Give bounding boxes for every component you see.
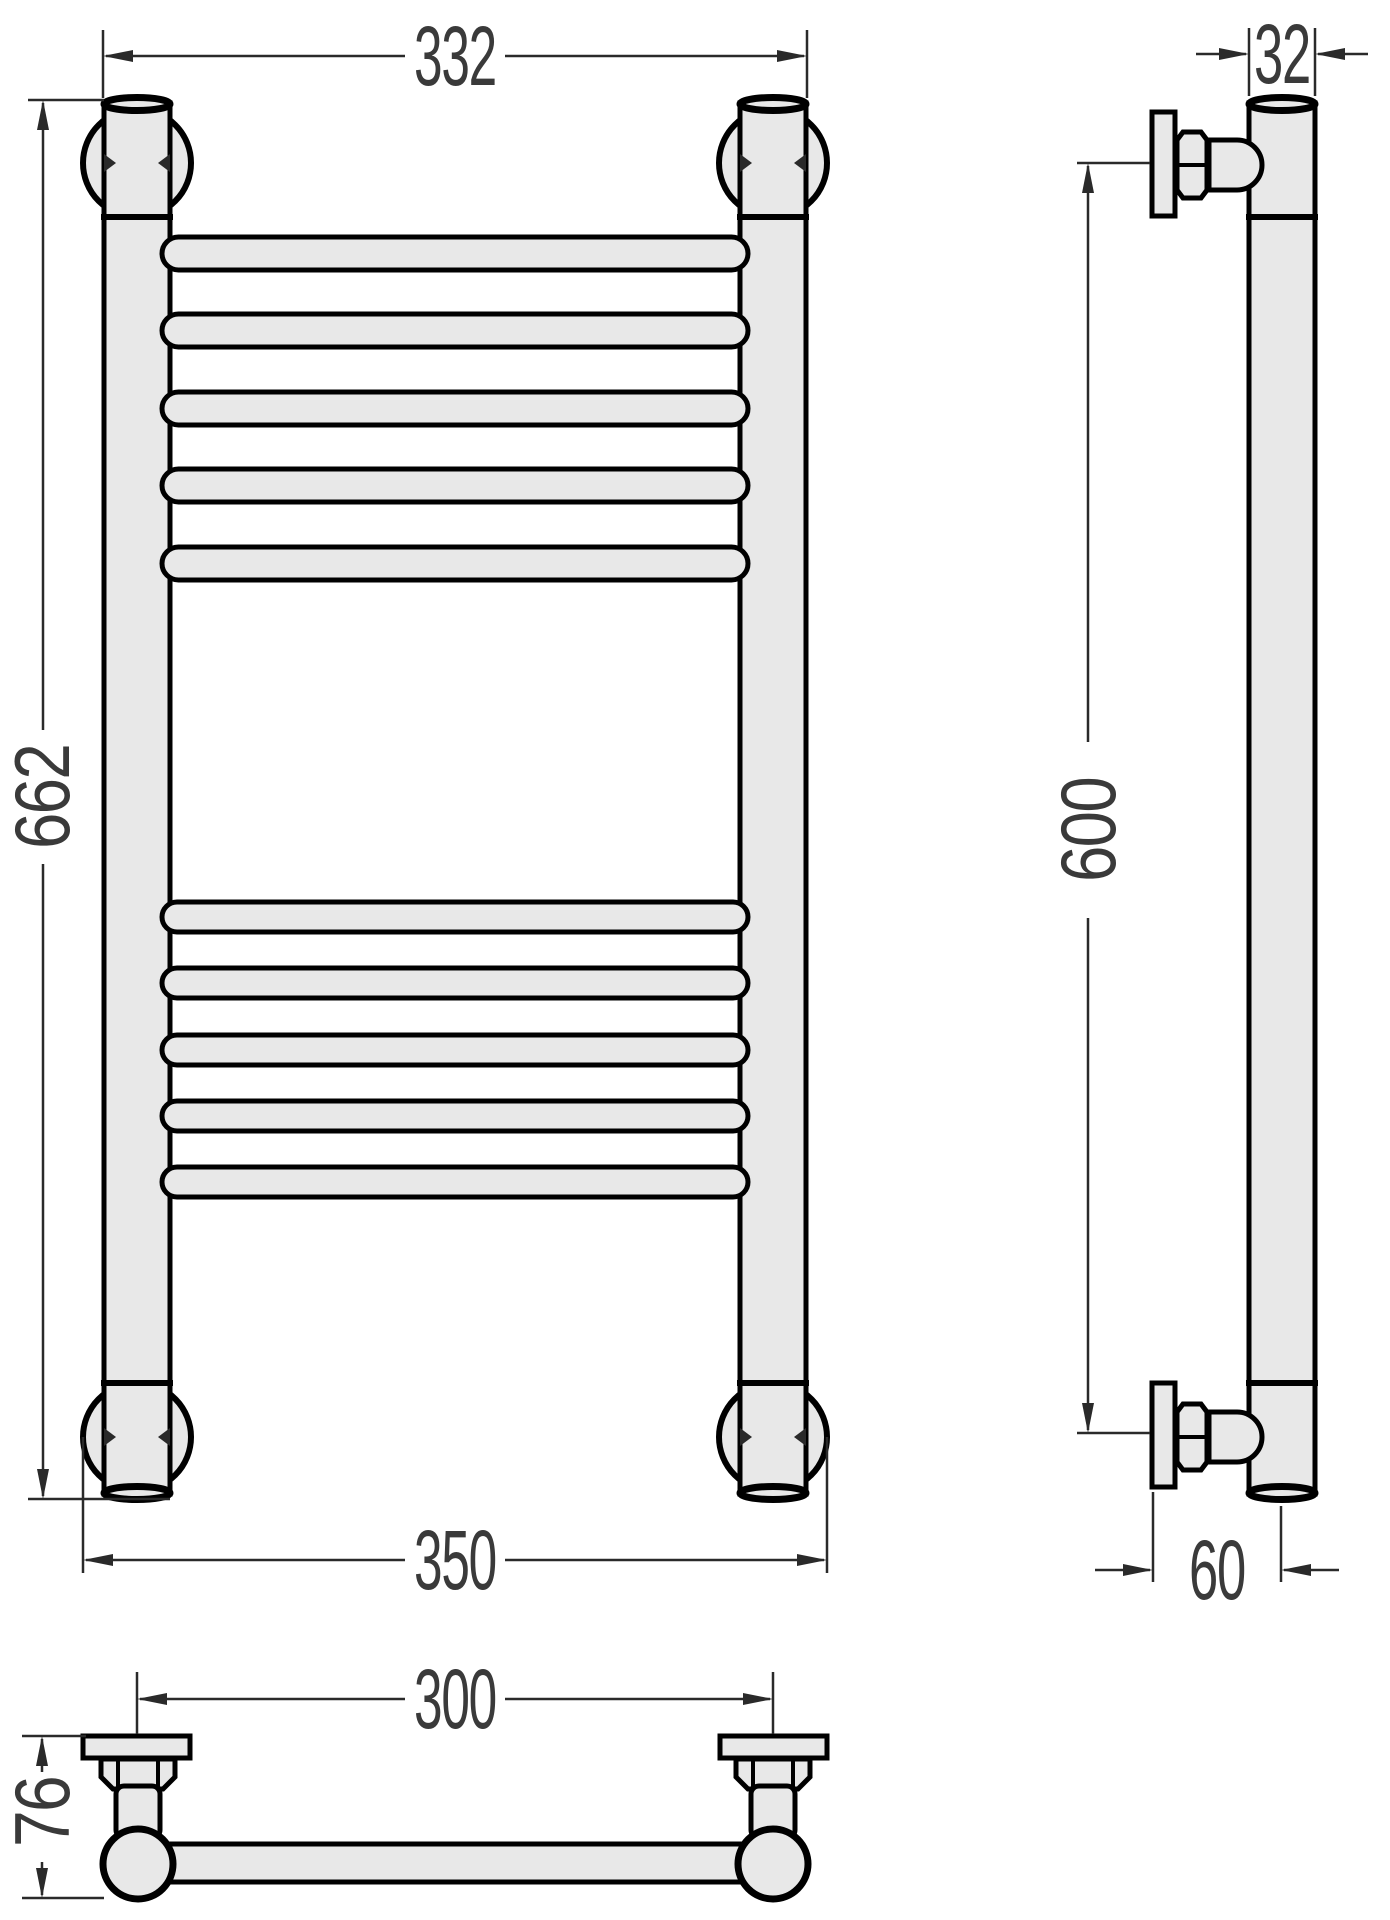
- top-view-rung-bar: [150, 1844, 773, 1882]
- rung: [162, 547, 748, 580]
- arrowhead-right: [1219, 48, 1249, 60]
- post-cap: [740, 1487, 806, 1500]
- wall-plate-bottom: [1152, 1383, 1175, 1487]
- dimension-label-76: 76: [0, 1777, 86, 1847]
- post-top-view-left: [103, 1829, 173, 1899]
- arrowhead-down: [37, 1469, 49, 1499]
- dimension-front-width-top: 332: [103, 9, 807, 103]
- arrowhead-right: [797, 1554, 827, 1566]
- post-cap: [104, 98, 170, 111]
- front-view: [83, 98, 827, 1500]
- rung: [162, 1035, 748, 1065]
- post-cap: [1249, 1487, 1315, 1500]
- arrowhead-left: [1281, 1564, 1311, 1576]
- side-post: [1249, 103, 1315, 1494]
- top-view: [83, 1736, 827, 1899]
- arrowhead-left: [83, 1554, 113, 1566]
- dimension-side-tube: 32: [1196, 7, 1368, 101]
- dimension-label-300: 300: [414, 1652, 496, 1746]
- arrowhead-up: [37, 100, 49, 130]
- arrowhead-up: [1082, 163, 1094, 193]
- rung: [162, 902, 748, 932]
- wall-plate-right: [720, 1736, 827, 1758]
- post-right: [740, 103, 806, 1494]
- arrowhead-left: [1315, 48, 1345, 60]
- dimension-side-wall-offset: 60: [1095, 1492, 1339, 1617]
- rung: [162, 237, 748, 270]
- dimension-label-332: 332: [414, 9, 496, 103]
- post-left: [104, 103, 170, 1494]
- dimension-label-350: 350: [414, 1513, 496, 1607]
- rung: [162, 314, 748, 347]
- dimension-label-32: 32: [1254, 7, 1310, 101]
- post-cap: [104, 1487, 170, 1500]
- bracket-stem-top: [1209, 140, 1262, 190]
- dimension-label-60: 60: [1189, 1523, 1245, 1617]
- rung: [162, 1167, 748, 1197]
- dimension-side-height: 600: [1044, 163, 1150, 1433]
- dimension-label-662: 662: [0, 745, 86, 849]
- technical-drawing-canvas: 332 662 350 32 600: [0, 0, 1390, 1920]
- rung: [162, 968, 748, 998]
- bracket-stem-bottom: [1209, 1412, 1262, 1462]
- dimension-label-600: 600: [1044, 778, 1132, 882]
- arrowhead-down: [1082, 1403, 1094, 1433]
- arrowhead-right: [1123, 1564, 1153, 1576]
- dimension-front-width-bottom: 350: [83, 1437, 827, 1607]
- arrowhead-down: [36, 1868, 48, 1898]
- arrowhead-left: [137, 1693, 167, 1705]
- rung: [162, 1101, 748, 1131]
- rung: [162, 469, 748, 502]
- arrowhead-right: [777, 50, 807, 62]
- side-view: [1152, 98, 1318, 1500]
- rung: [162, 392, 748, 425]
- post-top-view-right: [738, 1829, 808, 1899]
- arrowhead-right: [743, 1693, 773, 1705]
- wall-plate-left: [83, 1736, 190, 1758]
- dimension-top-spacing: 300: [137, 1652, 773, 1746]
- wall-plate-top: [1152, 112, 1175, 216]
- arrowhead-up: [36, 1736, 48, 1766]
- post-cap: [740, 98, 806, 111]
- arrowhead-left: [103, 50, 133, 62]
